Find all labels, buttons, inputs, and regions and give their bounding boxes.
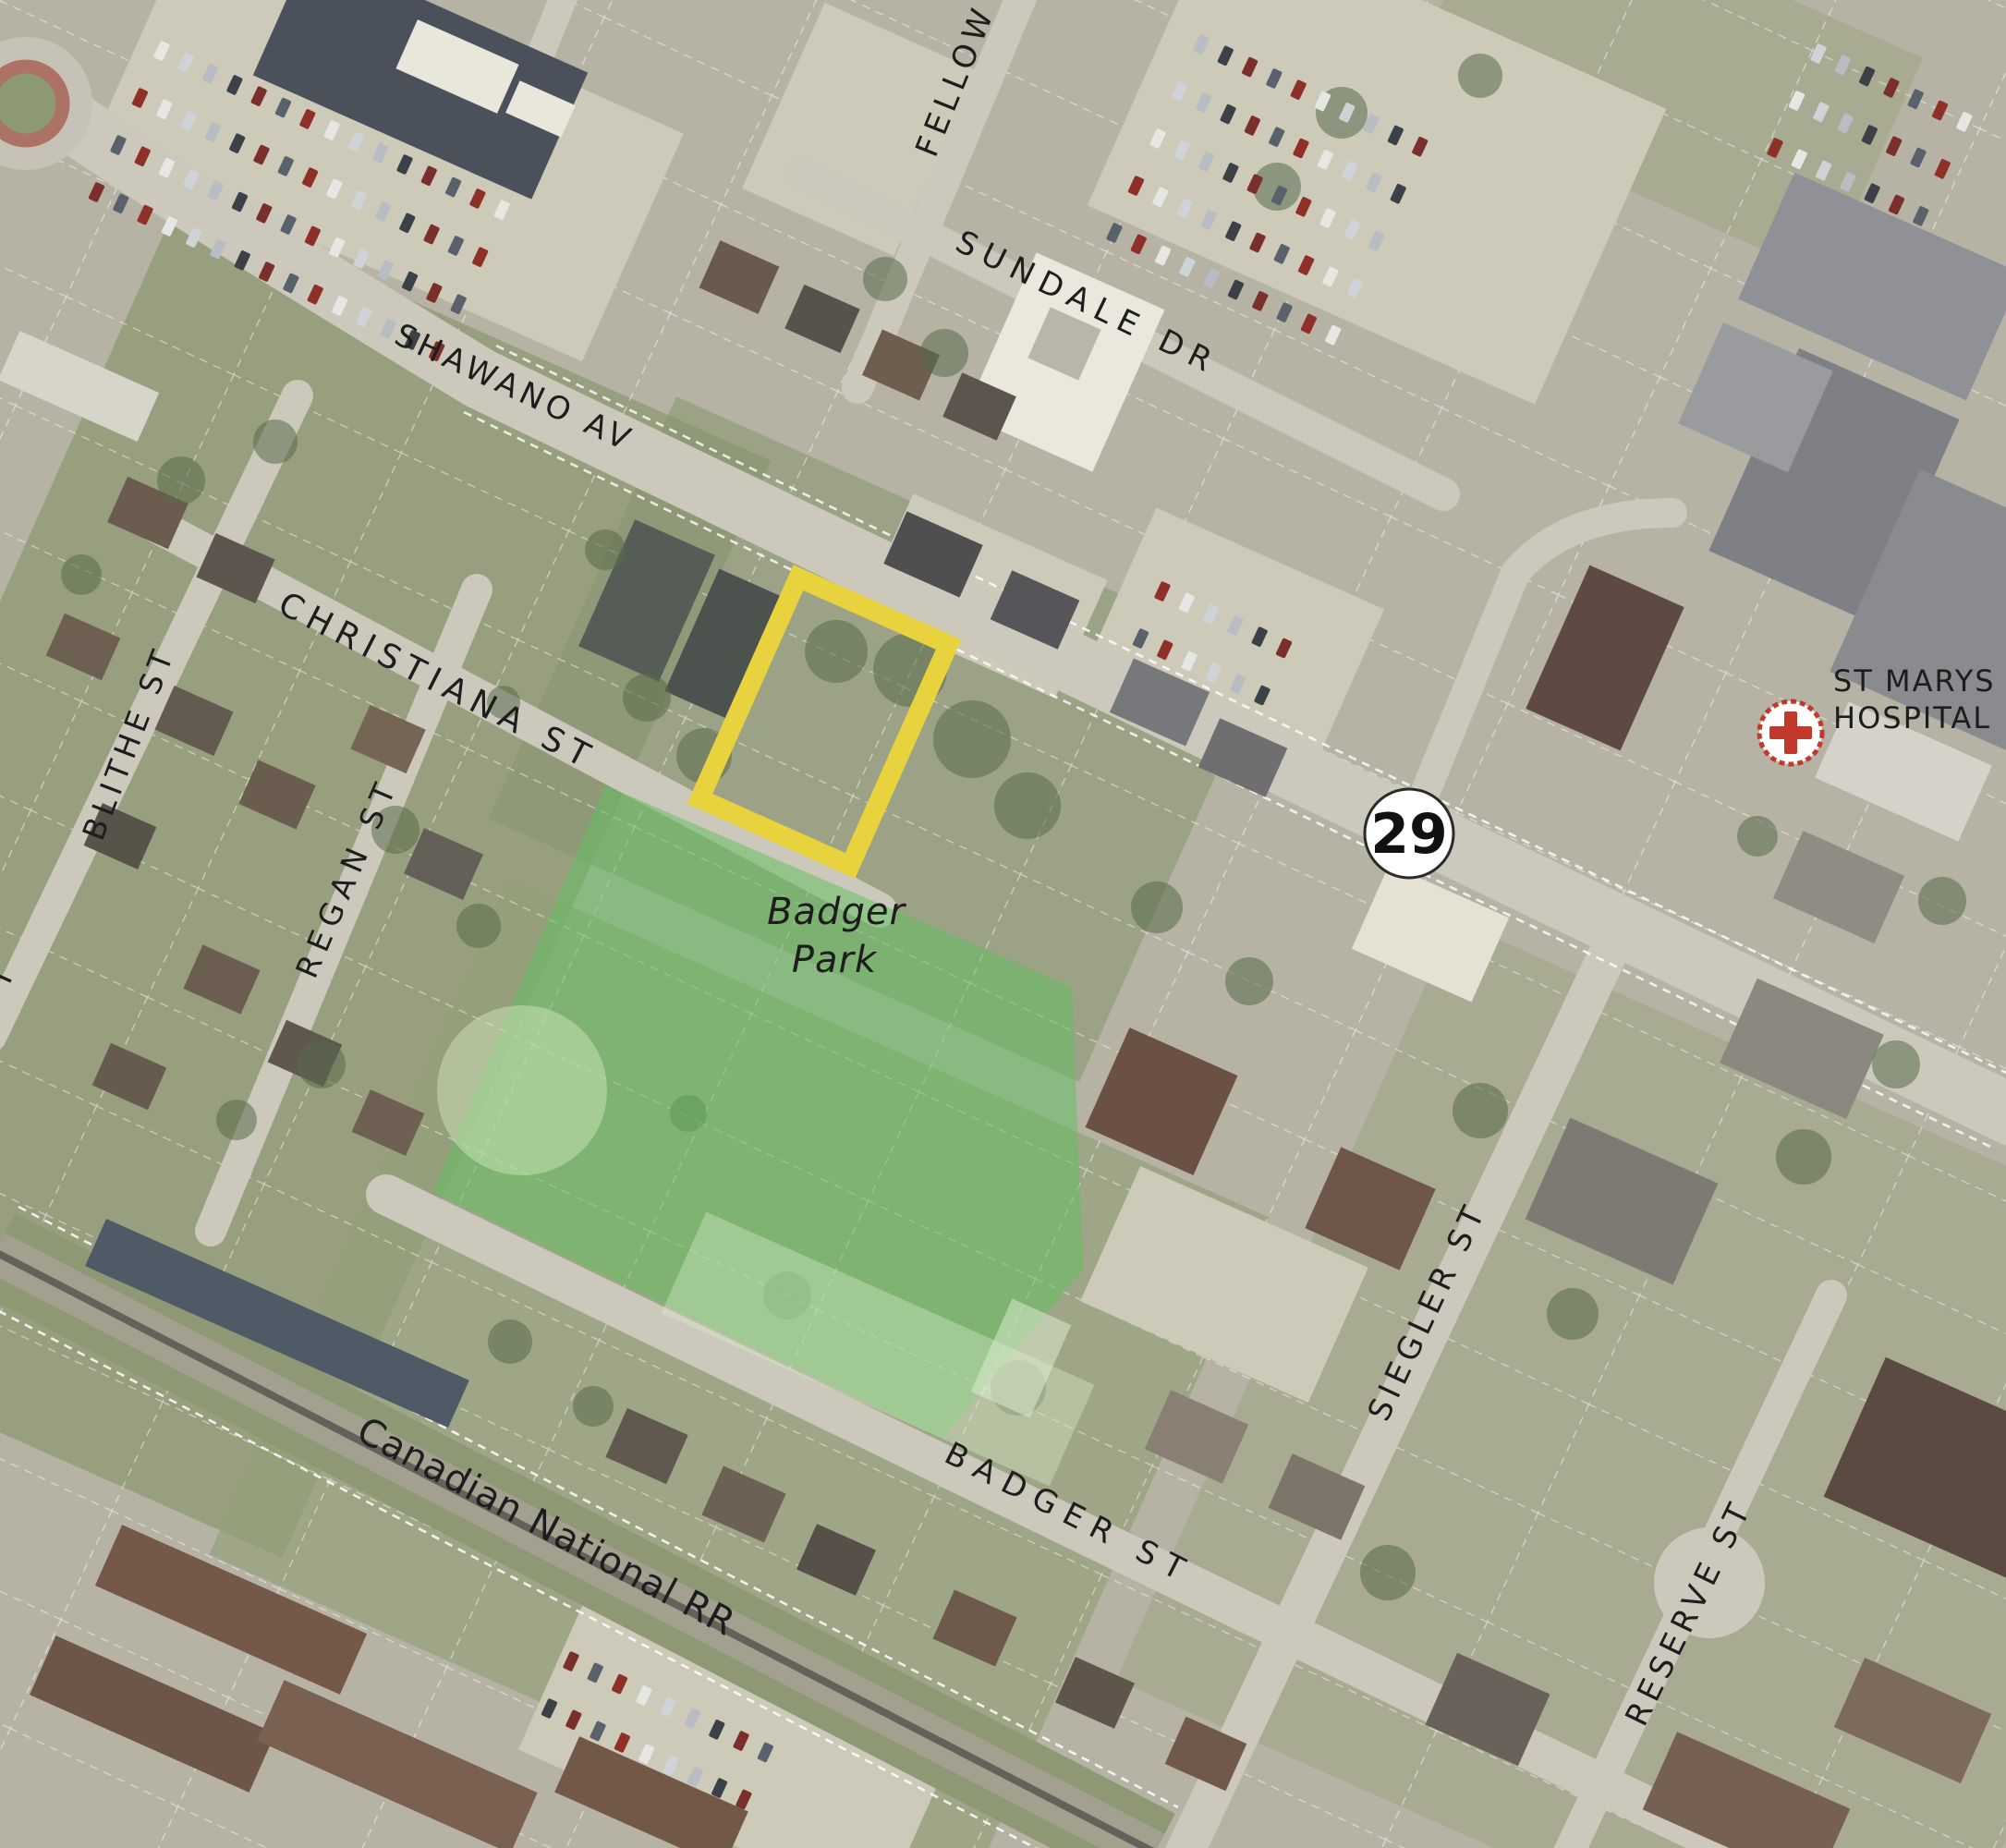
tree — [994, 772, 1061, 839]
tree — [1737, 816, 1778, 857]
hospital-name-line1-label: ST MARYS — [1833, 663, 1996, 699]
tree — [1458, 54, 1502, 98]
tree — [1360, 1545, 1416, 1600]
tree — [1131, 881, 1183, 933]
tree — [298, 1040, 346, 1088]
tree — [573, 1386, 614, 1427]
tree — [863, 257, 907, 301]
tree — [805, 620, 868, 683]
tree — [157, 456, 205, 505]
tree — [920, 329, 968, 377]
tree — [253, 419, 298, 464]
aerial-map[interactable]: 29 SHAWANO AVSUNDALE DRFELLOWCHRISTIANA … — [0, 0, 2006, 1848]
highway-number: 29 — [1370, 802, 1448, 867]
tree — [1453, 1083, 1508, 1138]
highway-29-shield: 29 — [1365, 789, 1453, 878]
tree — [1547, 1288, 1599, 1340]
tree — [1225, 957, 1273, 1005]
hospital-cross-icon — [1759, 701, 1822, 764]
tree — [1872, 1040, 1920, 1088]
park-name-line1-label: Badger — [767, 891, 906, 933]
tree — [623, 674, 671, 722]
tree — [1918, 877, 1966, 925]
tree — [456, 904, 501, 948]
tree — [61, 554, 102, 595]
tree — [216, 1100, 257, 1140]
hospital-name-line2-label: HOSPITAL — [1833, 700, 1991, 736]
aerial-map-canvas[interactable]: 29 SHAWANO AVSUNDALE DRFELLOWCHRISTIANA … — [0, 0, 2006, 1848]
park-ballfield — [437, 1005, 607, 1175]
tree — [933, 700, 1011, 778]
tree — [1776, 1129, 1831, 1185]
park-name-line2-label: Park — [792, 939, 878, 981]
tree — [585, 529, 626, 570]
tree — [488, 1319, 532, 1364]
